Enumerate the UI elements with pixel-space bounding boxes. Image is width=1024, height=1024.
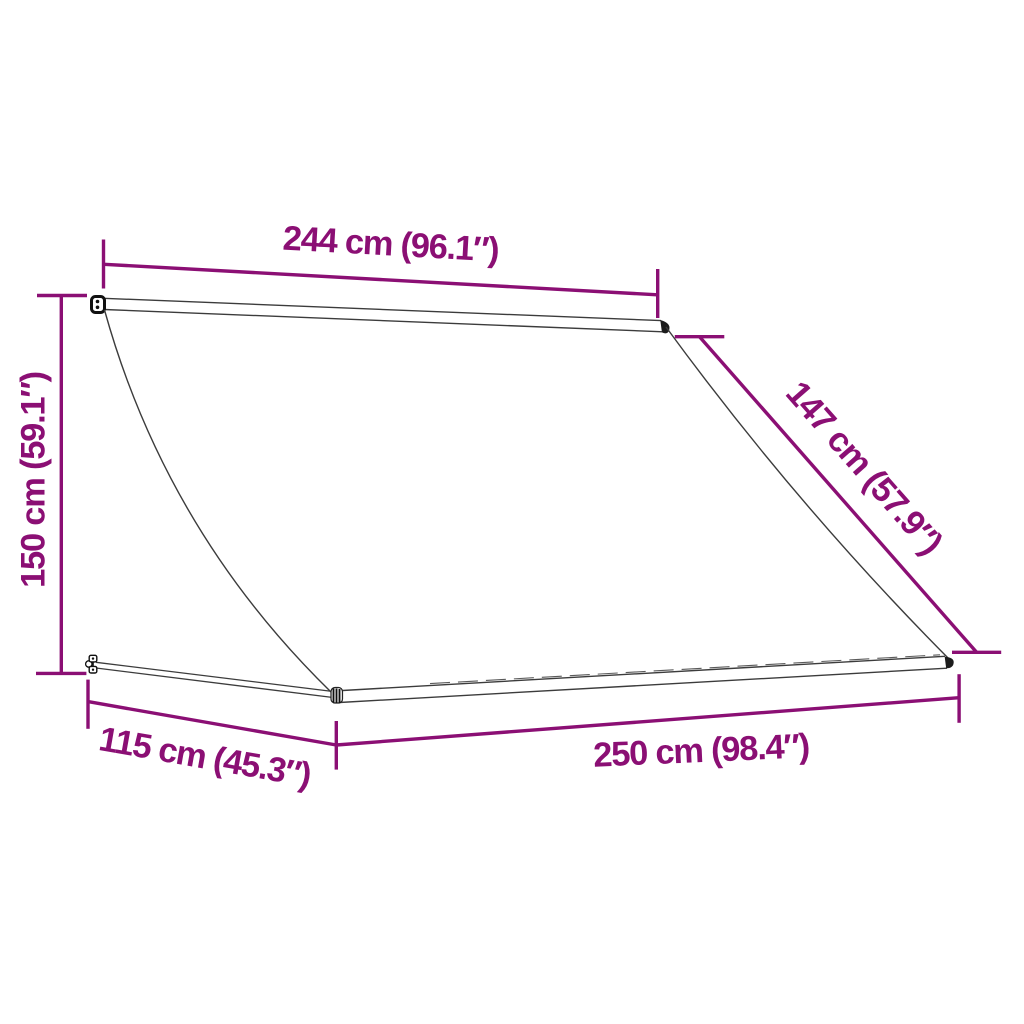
svg-text:150 cm (59.1″): 150 cm (59.1″) <box>15 372 53 588</box>
